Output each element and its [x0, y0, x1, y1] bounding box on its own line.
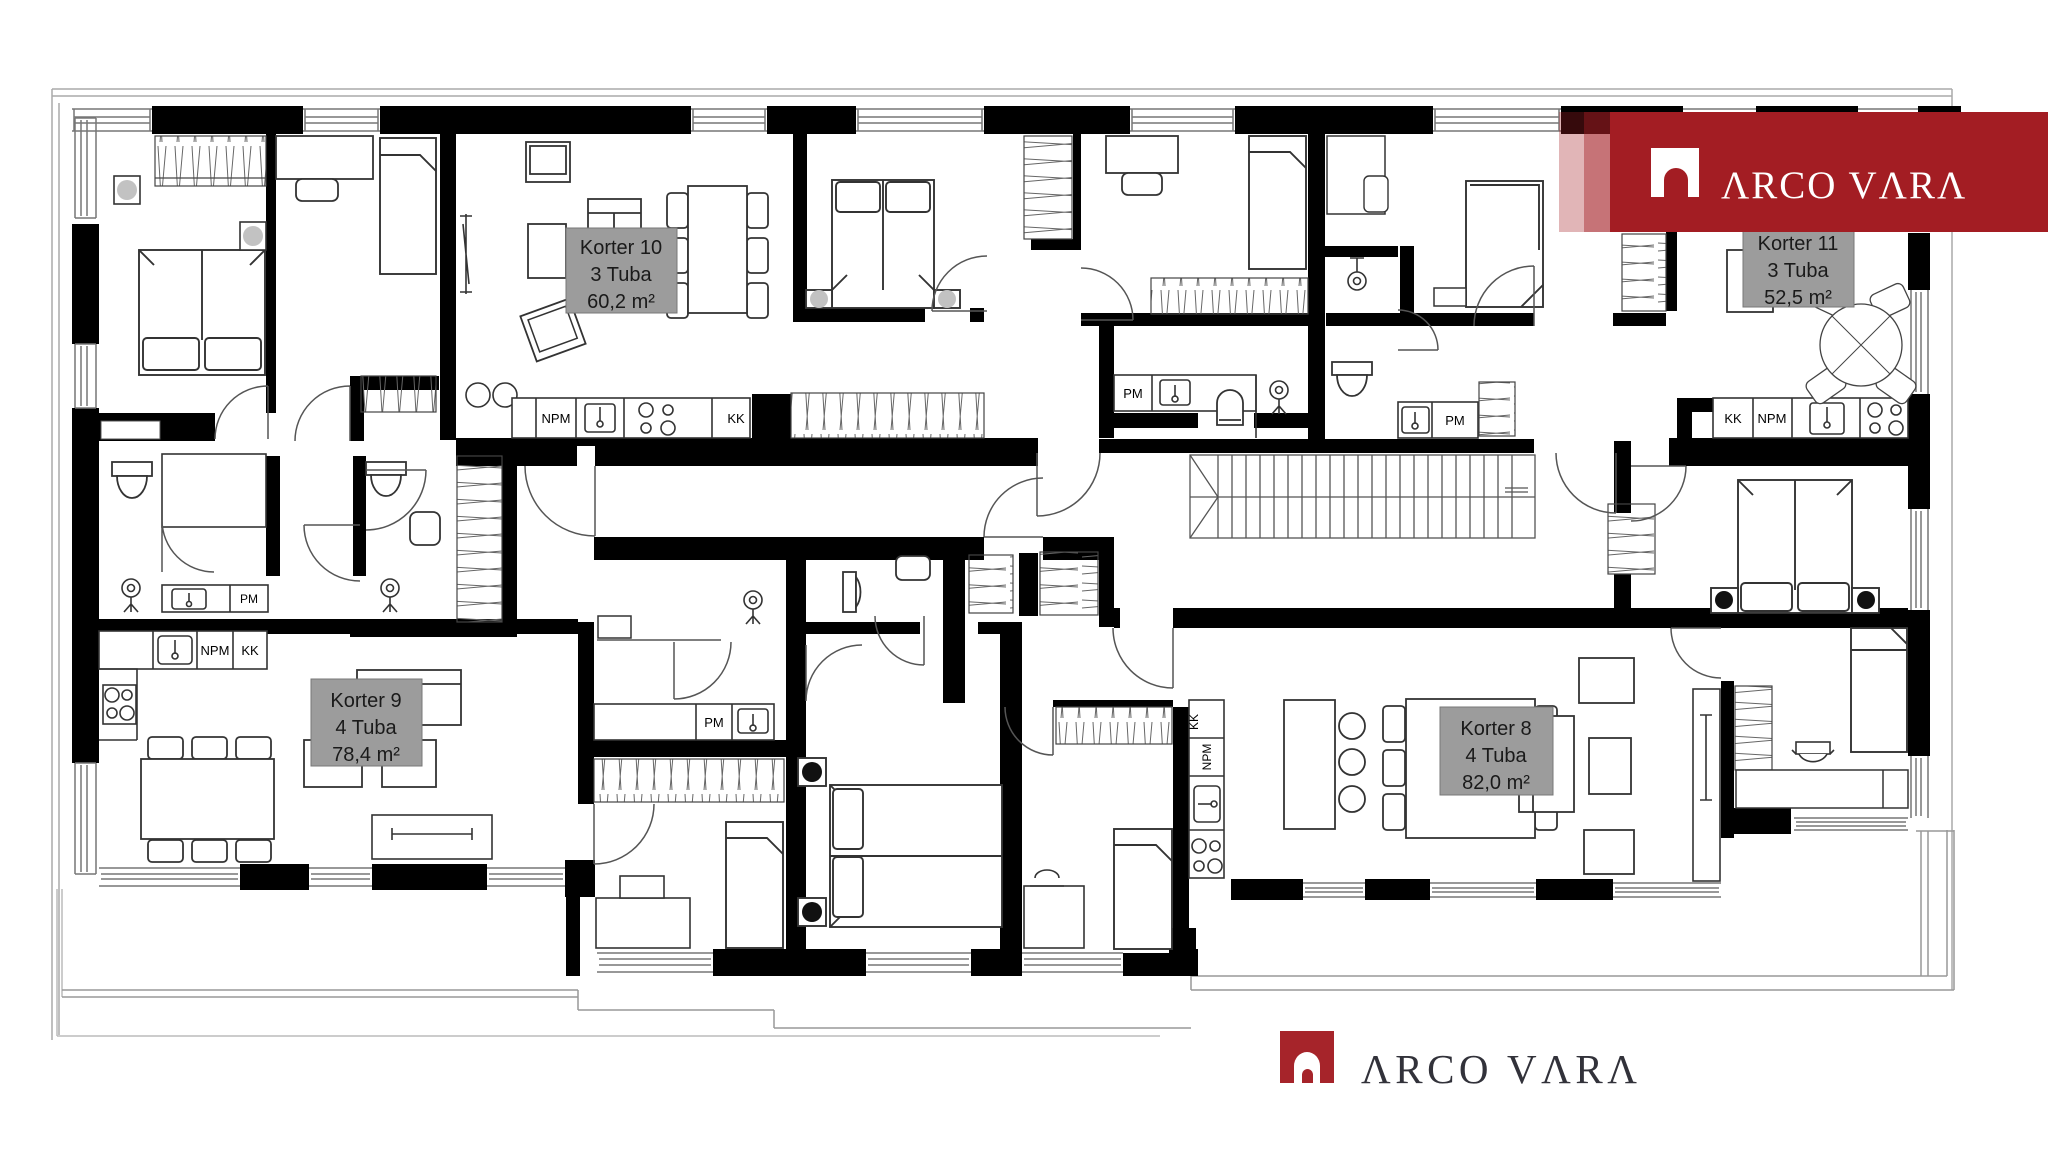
svg-text:3 Tuba: 3 Tuba — [1767, 260, 1829, 282]
svg-text:ΛRCO VΛRΛ: ΛRCO VΛRΛ — [1361, 1046, 1641, 1092]
svg-text:NPM: NPM — [1758, 411, 1787, 426]
svg-text:4 Tuba: 4 Tuba — [335, 717, 397, 739]
svg-text:PM: PM — [704, 715, 724, 730]
svg-text:KK: KK — [1187, 714, 1201, 730]
svg-text:PM: PM — [1445, 413, 1465, 428]
svg-text:Korter 10: Korter 10 — [580, 237, 662, 259]
svg-text:NPM: NPM — [542, 411, 571, 426]
svg-text:PM: PM — [1123, 386, 1143, 401]
svg-text:Korter 9: Korter 9 — [330, 690, 401, 712]
svg-text:KK: KK — [727, 411, 745, 426]
svg-text:NPM: NPM — [1200, 744, 1214, 771]
svg-text:3 Tuba: 3 Tuba — [590, 264, 652, 286]
svg-text:PM: PM — [240, 592, 258, 606]
svg-text:Korter 8: Korter 8 — [1460, 718, 1531, 740]
svg-text:78,4 m²: 78,4 m² — [332, 744, 400, 766]
svg-text:KK: KK — [1724, 411, 1742, 426]
svg-text:NPM: NPM — [201, 643, 230, 658]
svg-text:82,0 m²: 82,0 m² — [1462, 772, 1530, 794]
svg-text:ΛRCO VΛRΛ: ΛRCO VΛRΛ — [1721, 164, 1967, 207]
svg-text:KK: KK — [241, 643, 259, 658]
svg-text:4 Tuba: 4 Tuba — [1465, 745, 1527, 767]
svg-text:60,2 m²: 60,2 m² — [587, 291, 655, 313]
svg-text:52,5 m²: 52,5 m² — [1764, 287, 1832, 309]
svg-text:Korter 11: Korter 11 — [1758, 233, 1839, 255]
